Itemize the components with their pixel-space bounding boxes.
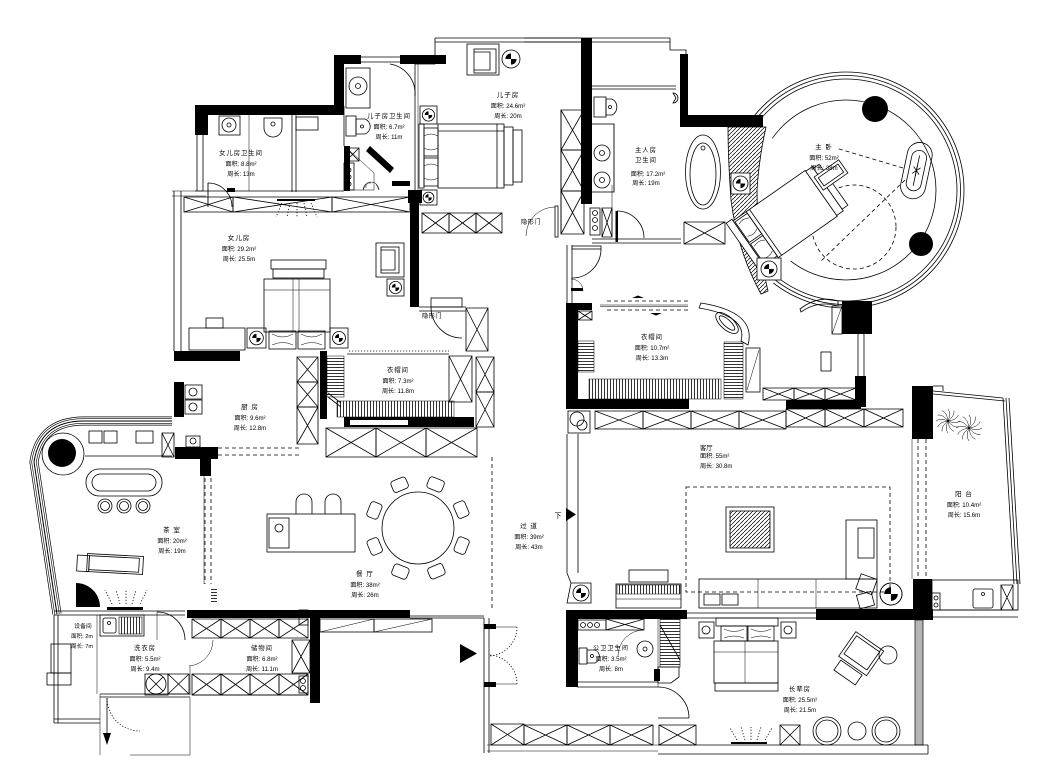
svg-text:周长: 30.8m: 周长: 30.8m — [700, 462, 733, 470]
svg-text:面积: 25.5m²: 面积: 25.5m² — [783, 696, 818, 704]
svg-text:周长: 20m: 周长: 20m — [494, 112, 521, 120]
svg-text:周长: 7m: 周长: 7m — [71, 642, 93, 650]
svg-text:茶 室: 茶 室 — [163, 525, 181, 534]
svg-text:过 道: 过 道 — [520, 521, 538, 530]
svg-text:周长: 11m: 周长: 11m — [376, 133, 403, 141]
svg-text:公卫卫生间: 公卫卫生间 — [593, 644, 629, 652]
svg-text:周长: 25.5m: 周长: 25.5m — [223, 255, 256, 263]
svg-text:储物间: 储物间 — [251, 643, 273, 652]
svg-text:长辈房: 长辈房 — [789, 684, 811, 693]
svg-text:周长: 21.5m: 周长: 21.5m — [784, 706, 817, 714]
svg-text:阳 台: 阳 台 — [955, 489, 973, 498]
svg-text:面积: 10.7m²: 面积: 10.7m² — [635, 344, 670, 352]
svg-text:周长: 26m: 周长: 26m — [351, 591, 378, 599]
svg-text:衣帽间: 衣帽间 — [641, 332, 663, 341]
svg-text:面积: 6.7m²: 面积: 6.7m² — [373, 123, 404, 131]
svg-text:面积: 8.8m²: 面积: 8.8m² — [225, 160, 256, 168]
svg-text:面积: 5.5m²: 面积: 5.5m² — [129, 655, 160, 663]
svg-text:周长: 9.4m: 周长: 9.4m — [130, 665, 159, 673]
svg-text:面积: 20m²: 面积: 20m² — [157, 537, 186, 545]
svg-text:隐形门: 隐形门 — [422, 312, 442, 320]
svg-text:面积: 9.6m²: 面积: 9.6m² — [234, 414, 265, 422]
svg-text:客厅: 客厅 — [700, 443, 713, 452]
svg-text:周长: 11.8m: 周长: 11.8m — [382, 387, 414, 395]
svg-text:面积: 55m²: 面积: 55m² — [700, 452, 729, 460]
svg-text:面积: 38m²: 面积: 38m² — [350, 581, 379, 589]
svg-text:周长: 19m: 周长: 19m — [158, 547, 185, 555]
svg-text:面积: 2m: 面积: 2m — [71, 632, 93, 640]
svg-text:儿子房: 儿子房 — [497, 90, 520, 99]
svg-text:面积: 7.3m²: 面积: 7.3m² — [382, 377, 413, 385]
svg-text:周长: 12.8m: 周长: 12.8m — [234, 424, 267, 432]
svg-text:卫生间: 卫生间 — [635, 155, 657, 164]
svg-text:主人房: 主人房 — [635, 145, 657, 154]
svg-text:周长: 13.3m: 周长: 13.3m — [636, 354, 669, 362]
svg-text:面积: 52m²: 面积: 52m² — [809, 154, 838, 162]
svg-text:儿子房卫生间: 儿子房卫生间 — [367, 111, 411, 120]
svg-text:洗衣房: 洗衣房 — [134, 643, 156, 652]
svg-text:面积: 24.6m²: 面积: 24.6m² — [491, 102, 526, 110]
svg-text:面积: 3.5m²: 面积: 3.5m² — [595, 655, 626, 663]
svg-text:周长: 13m: 周长: 13m — [227, 170, 254, 178]
svg-text:面积: 10.4m²: 面积: 10.4m² — [947, 501, 982, 509]
svg-text:女儿房卫生间: 女儿房卫生间 — [219, 148, 263, 157]
svg-text:下: 下 — [555, 512, 562, 520]
svg-text:周长: 15.6m: 周长: 15.6m — [948, 511, 981, 519]
svg-text:周长: 19m: 周长: 19m — [632, 179, 659, 187]
svg-text:周长: 8m: 周长: 8m — [599, 665, 623, 673]
svg-text:隐形门: 隐形门 — [521, 218, 541, 226]
svg-text:主 卧: 主 卧 — [815, 142, 833, 151]
svg-text:设备间: 设备间 — [74, 622, 92, 630]
svg-text:衣帽间: 衣帽间 — [387, 365, 409, 374]
svg-text:女儿房: 女儿房 — [228, 233, 251, 242]
svg-text:面积: 6.8m²: 面积: 6.8m² — [246, 655, 277, 663]
svg-text:周长: 11.1m: 周长: 11.1m — [246, 665, 278, 673]
svg-text:面积: 39m²: 面积: 39m² — [514, 533, 543, 541]
svg-text:厨 房: 厨 房 — [241, 402, 259, 411]
svg-text:面积: 17.2m²: 面积: 17.2m² — [631, 170, 666, 178]
svg-text:面积: 29.2m²: 面积: 29.2m² — [222, 245, 257, 253]
svg-text:周长: 43m: 周长: 43m — [515, 543, 542, 551]
svg-text:餐 厅: 餐 厅 — [356, 569, 374, 578]
svg-text:周长: 38m: 周长: 38m — [810, 164, 837, 172]
